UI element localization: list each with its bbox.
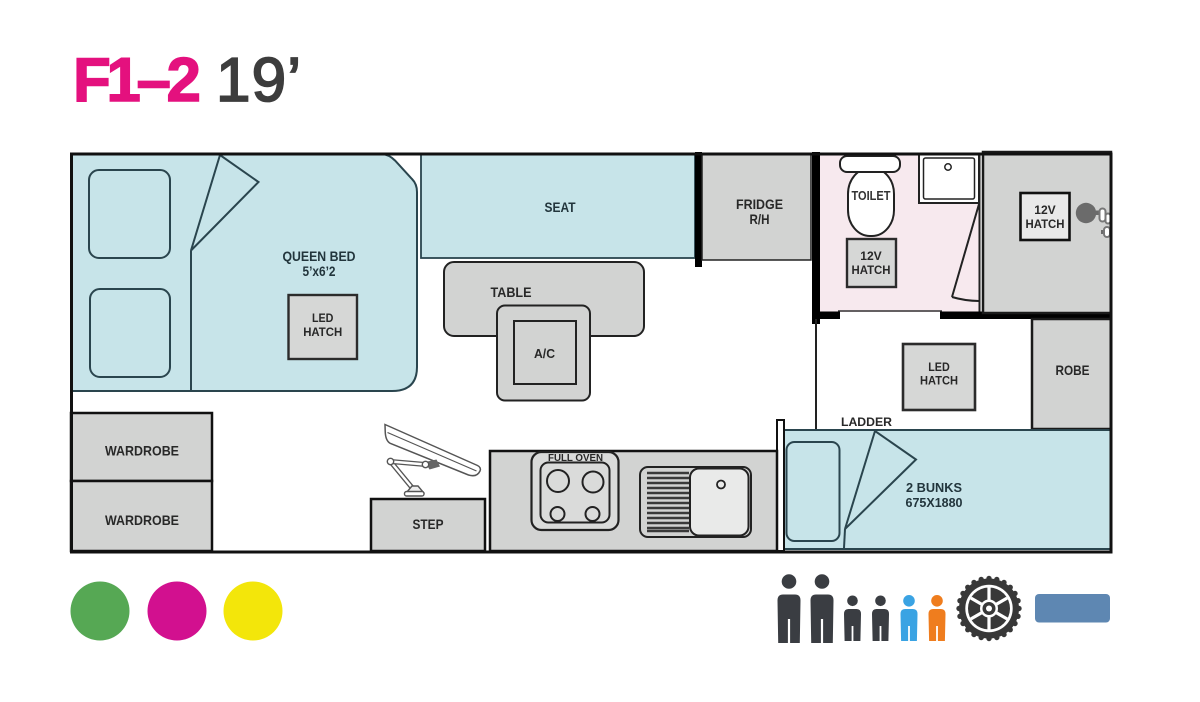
svg-text:HATCH: HATCH bbox=[303, 325, 342, 339]
svg-text:TABLE: TABLE bbox=[491, 285, 532, 300]
svg-text:12V: 12V bbox=[860, 249, 882, 263]
svg-text:5’x6’2: 5’x6’2 bbox=[303, 263, 336, 279]
svg-text:ROBE: ROBE bbox=[1056, 363, 1090, 378]
svg-text:2 BUNKS: 2 BUNKS bbox=[906, 480, 962, 495]
svg-text:WARDROBE: WARDROBE bbox=[105, 443, 179, 459]
svg-text:675X1880: 675X1880 bbox=[906, 495, 963, 510]
svg-text:HATCH: HATCH bbox=[1026, 217, 1065, 231]
svg-text:LED: LED bbox=[928, 360, 950, 374]
svg-text:SEAT: SEAT bbox=[545, 199, 576, 215]
svg-text:FRIDGE: FRIDGE bbox=[736, 196, 783, 212]
svg-text:HATCH: HATCH bbox=[920, 374, 958, 388]
svg-text:A/C: A/C bbox=[534, 346, 556, 361]
svg-text:QUEEN BED: QUEEN BED bbox=[283, 248, 356, 264]
svg-text:LADDER: LADDER bbox=[841, 415, 892, 429]
svg-text:R/H: R/H bbox=[750, 211, 770, 227]
svg-text:12V: 12V bbox=[1034, 203, 1056, 217]
svg-text:TOILET: TOILET bbox=[852, 188, 891, 203]
svg-text:STEP: STEP bbox=[413, 517, 444, 532]
svg-text:WARDROBE: WARDROBE bbox=[105, 512, 179, 528]
svg-text:F1–2: F1–2 bbox=[73, 46, 199, 115]
svg-text:19’: 19’ bbox=[216, 46, 301, 115]
svg-text:LED: LED bbox=[312, 311, 334, 325]
svg-text:HATCH: HATCH bbox=[852, 263, 891, 277]
svg-text:FULL OVEN: FULL OVEN bbox=[548, 452, 603, 464]
